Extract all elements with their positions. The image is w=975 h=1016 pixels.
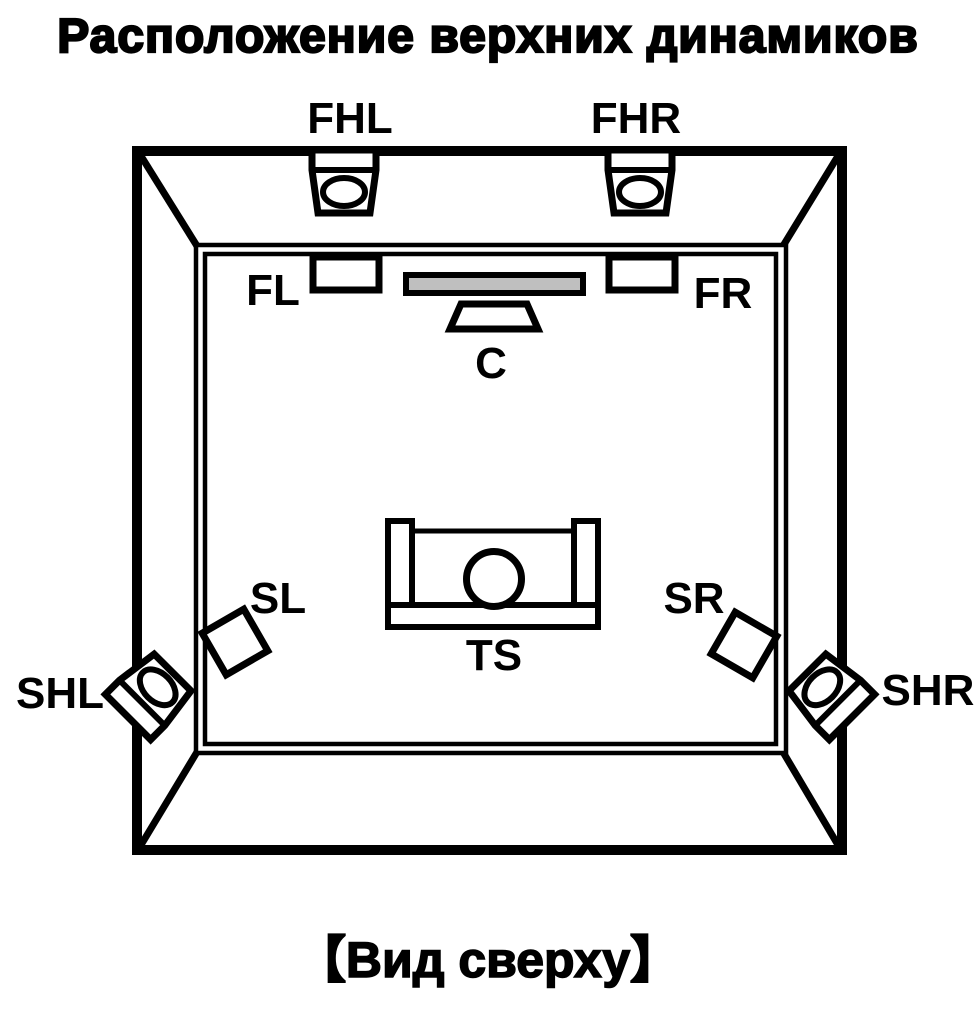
label-ts: TS	[466, 631, 522, 680]
label-sl: SL	[250, 574, 306, 623]
page-title: Расположение верхних динамиков	[57, 10, 918, 63]
sofa-armrest-right	[574, 521, 598, 608]
view-caption: 【Вид сверху】	[296, 932, 680, 988]
top-view-room-diagram: Расположение верхних динамиков	[0, 0, 975, 1016]
label-sr: SR	[663, 574, 724, 623]
listener-head	[467, 552, 522, 607]
front-height-right-speaker	[608, 150, 672, 213]
label-fr: FR	[694, 269, 753, 318]
center-speaker	[450, 304, 538, 329]
speaker-placement-diagram: Расположение верхних динамиков	[0, 0, 975, 1016]
sofa-armrest-left	[388, 521, 412, 608]
label-c: C	[475, 339, 507, 388]
label-fl: FL	[246, 266, 300, 315]
tv-screen	[406, 275, 583, 293]
front-right-speaker	[609, 257, 675, 290]
label-shl: SHL	[16, 669, 104, 718]
label-fhl: FHL	[307, 94, 393, 143]
front-height-left-speaker	[312, 150, 376, 213]
label-shr: SHR	[882, 666, 975, 715]
label-fhr: FHR	[591, 94, 681, 143]
front-left-speaker	[313, 257, 379, 290]
